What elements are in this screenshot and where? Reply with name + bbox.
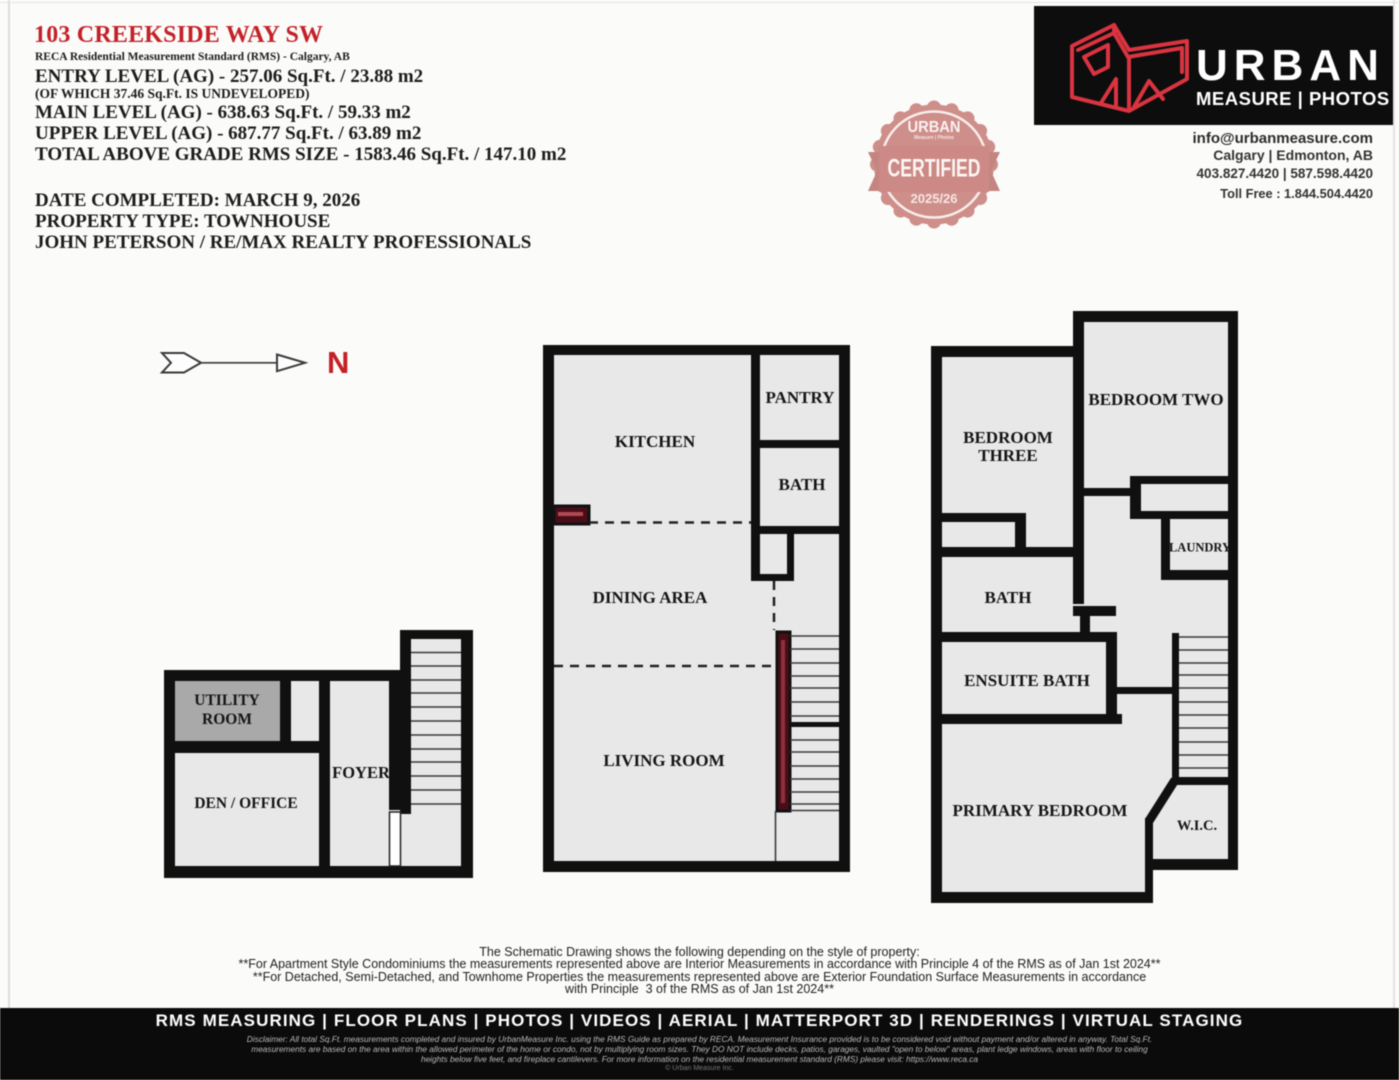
svg-text:W.I.C.: W.I.C. [1177, 818, 1217, 834]
svg-text:BATH: BATH [779, 475, 826, 494]
svg-text:KITCHEN: KITCHEN [615, 432, 696, 451]
svg-text:PRIMARY BEDROOM: PRIMARY BEDROOM [953, 801, 1128, 820]
svg-text:ROOM: ROOM [202, 711, 252, 728]
svg-text:BEDROOM TWO: BEDROOM TWO [1088, 390, 1223, 409]
svg-text:THREE: THREE [978, 446, 1038, 465]
svg-text:UTILITY: UTILITY [194, 692, 259, 709]
svg-text:N: N [327, 345, 349, 380]
svg-text:DEN / OFFICE: DEN / OFFICE [194, 795, 297, 812]
svg-text:LAUNDRY: LAUNDRY [1169, 541, 1231, 555]
svg-text:DINING AREA: DINING AREA [593, 588, 708, 607]
svg-text:ENSUITE BATH: ENSUITE BATH [964, 671, 1090, 690]
svg-text:BEDROOM: BEDROOM [963, 428, 1053, 447]
svg-text:PANTRY: PANTRY [766, 388, 835, 407]
svg-text:BATH: BATH [985, 588, 1032, 607]
svg-text:LIVING ROOM: LIVING ROOM [603, 751, 724, 770]
svg-text:FOYER: FOYER [332, 763, 391, 782]
